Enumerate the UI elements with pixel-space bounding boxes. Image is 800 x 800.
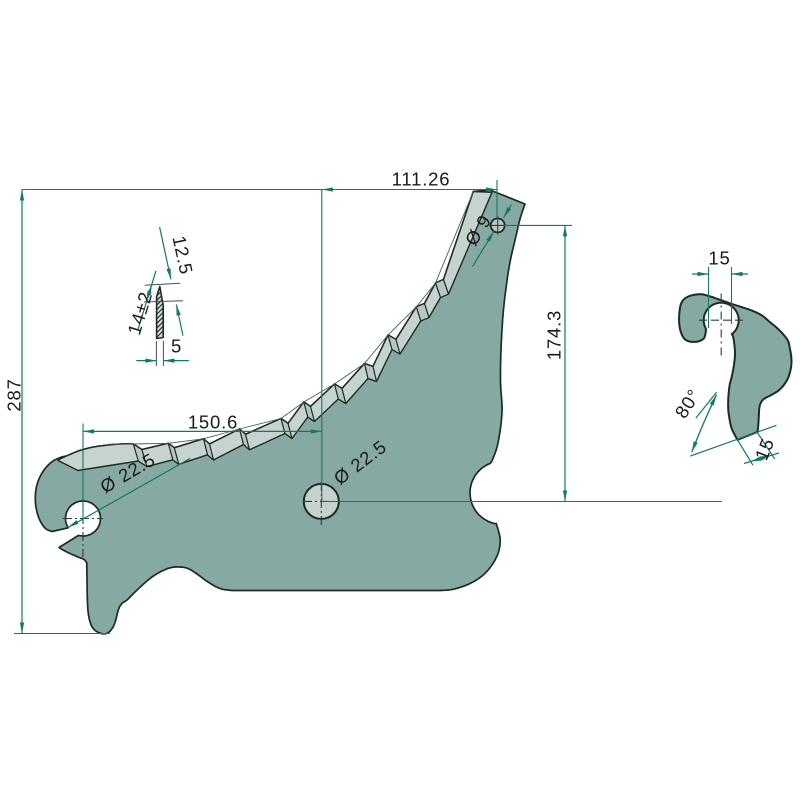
- svg-text:287: 287: [4, 378, 25, 411]
- svg-text:174.3: 174.3: [544, 310, 565, 360]
- svg-text:111.26: 111.26: [392, 169, 451, 190]
- svg-text:15: 15: [708, 248, 730, 269]
- svg-text:5: 5: [171, 336, 182, 357]
- svg-text:150.6: 150.6: [188, 412, 238, 433]
